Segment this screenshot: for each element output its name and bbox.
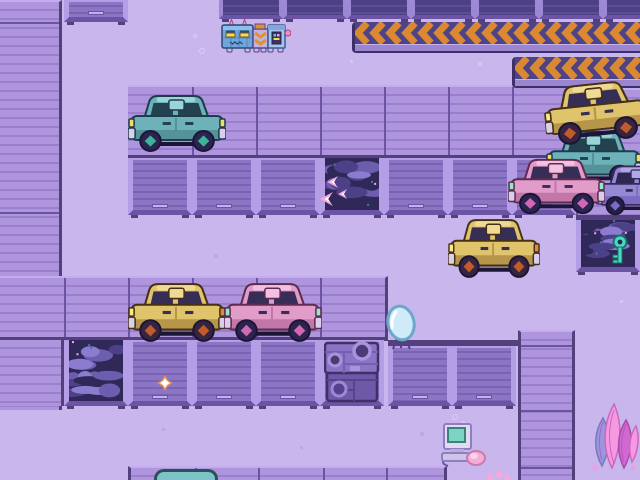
key-icon [610,234,630,266]
door-handle [152,395,168,399]
lower-wall-left-stub [0,340,64,406]
door-handle [476,395,492,399]
floor-speck [162,428,165,431]
garage-door [192,340,256,406]
roof-seam [512,87,514,158]
floor-speck [420,432,424,436]
door-foot [374,406,381,409]
sparkle-arrow-icon[interactable] [338,189,348,199]
door-foot [391,406,398,409]
floor-speck [350,60,353,63]
garage-door [128,158,192,215]
robot-sprite [221,19,291,54]
right-door-row [388,346,516,410]
roof-seam [256,87,258,158]
door-foot [438,215,445,218]
door-foot [387,215,394,218]
column-seam [521,467,572,469]
plant[interactable] [588,400,640,472]
crate-sprite [324,340,380,404]
door-foot [259,406,266,409]
robot-eye [226,33,235,37]
door-foot [374,215,381,218]
roof-seam [258,468,260,480]
door-foot [67,22,74,25]
bubble [199,48,205,54]
column-seam [521,345,572,347]
car-yellow-left[interactable] [128,280,226,344]
door-foot [195,215,202,218]
chevron-stripe [355,22,640,44]
car-sprite [448,216,540,280]
sparkle-arrow-icon[interactable] [327,176,339,188]
door-foot [182,406,189,409]
door-handle [216,204,232,208]
car-teal-parked[interactable] [128,92,226,154]
tank-foot [578,272,585,275]
floor-speck [478,62,482,66]
door-handle [280,395,296,399]
garage-door [475,0,539,19]
water-texture [69,340,123,398]
garage-door [256,158,320,215]
barrier-top [352,22,640,53]
sparkle-star-icon[interactable] [157,375,173,391]
floor-speck [214,254,218,258]
garage-door [192,158,256,215]
door-foot [131,215,138,218]
bubble [193,34,197,38]
robot-antenna-ball [285,30,291,36]
car-stack-yellow[interactable] [541,75,640,150]
sparkle-arrow-icon[interactable] [320,192,334,206]
garage-door [347,0,411,19]
car-pink-left[interactable] [224,280,322,344]
door-foot [506,406,513,409]
computer-sprite [440,410,486,468]
roof-seam [384,87,386,158]
door-handle [412,395,428,399]
door-foot [246,215,253,218]
garage-door [603,0,640,19]
car-stack-pink[interactable] [508,156,605,216]
garage-door [539,0,603,19]
garage-door [384,158,448,215]
garage-door [448,158,512,215]
garage-door [219,0,283,19]
garage-door [64,0,128,22]
door-handle [408,204,424,208]
roof-seam [323,468,325,480]
tank-foot [631,272,638,275]
teal-car-roof-bottom[interactable] [154,469,218,480]
door-foot [195,406,202,409]
roof-seam [320,87,322,158]
computer[interactable] [440,410,486,468]
door-handle [280,204,296,208]
door-foot [118,22,125,25]
door-foot [118,406,125,409]
door-handle [472,204,488,208]
door-foot [182,215,189,218]
door-foot [323,406,330,409]
door-foot [131,406,138,409]
car-sprite [224,280,322,344]
car-sprite [128,92,226,154]
door-foot [455,406,462,409]
robot-eye [240,33,249,37]
door-handle [152,204,168,208]
garage-door [452,346,516,406]
door-handle [216,395,232,399]
door-foot [67,406,74,409]
column-seam [521,410,572,412]
door-foot [310,215,317,218]
door-foot [337,19,344,22]
car-sprite [508,156,605,216]
door-foot [323,215,330,218]
car-sprite [128,280,226,344]
garage-door [411,0,475,19]
wall-seam [0,212,59,214]
floor-speck [620,300,623,303]
door-handle [88,11,104,15]
key[interactable] [610,234,630,266]
garage-door [283,0,347,19]
garage-door [128,340,192,406]
chevron-stripe [515,57,640,79]
mirror-sprite [382,304,420,352]
door-foot [442,406,449,409]
pink-sprouts [486,468,510,480]
garage-door [256,340,320,406]
crystal-plant-sprite [588,400,640,472]
car-sprite [541,75,640,150]
crate[interactable] [324,340,380,404]
game-viewport[interactable] [0,0,640,480]
garage-door [388,346,452,406]
wall-seam [0,22,59,24]
floor-speck [300,446,303,449]
barrier-ledge [355,44,640,53]
roof-seam [64,278,66,337]
top-door-single [64,0,128,26]
mirror[interactable] [382,304,420,352]
roof-seam [386,468,388,480]
car-yellow-right[interactable] [448,216,540,280]
roof-seam [448,87,450,158]
lower-right-column [518,330,575,480]
door-foot [259,215,266,218]
key-water-tank [576,220,640,272]
door-foot [246,406,253,409]
door-foot [310,406,317,409]
water-bay [64,340,128,406]
